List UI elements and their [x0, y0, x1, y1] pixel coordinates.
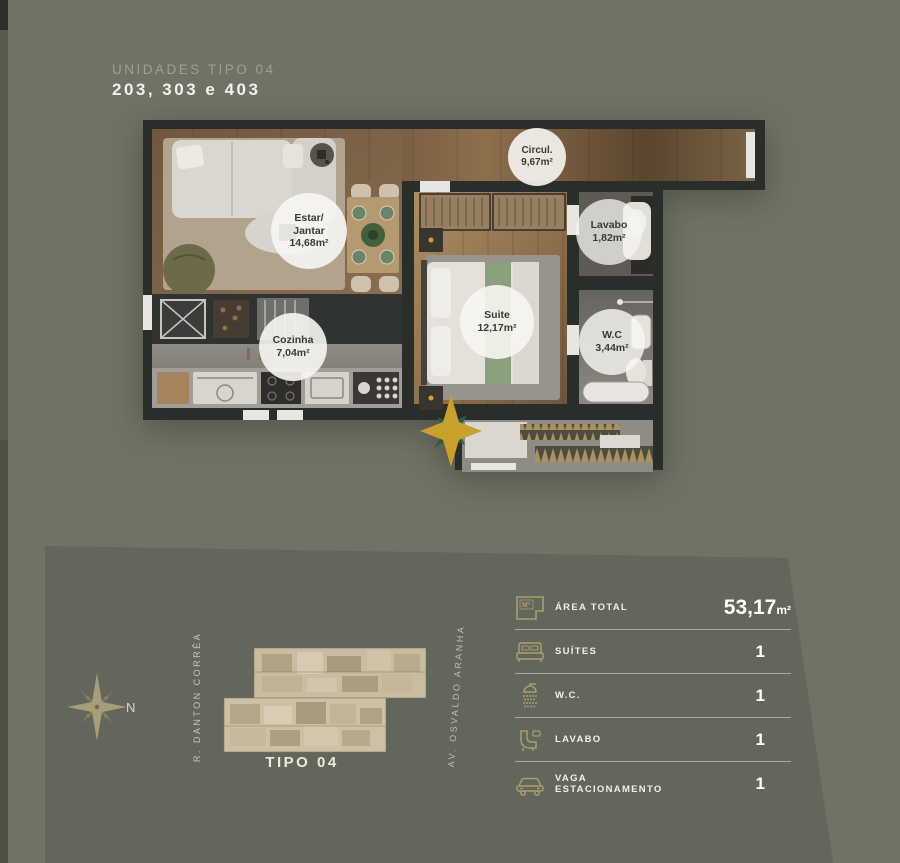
room-badge-lavabo: Lavabo 1,82m² — [576, 199, 642, 265]
car-icon — [515, 771, 555, 797]
spec-label: VAGA ESTACIONAMENTO — [555, 773, 693, 795]
svg-text:M²: M² — [522, 602, 531, 609]
street-name-left: R. DANTON CORRÊA — [192, 622, 202, 772]
compass-north-label: N — [126, 700, 136, 715]
spec-label: SUÍTES — [555, 646, 693, 657]
mini-building-plan — [222, 646, 434, 756]
spec-row-suites: SUÍTES 1 — [515, 629, 791, 673]
room-badge-estar-jantar: Estar/ Jantar 14,68m² — [271, 193, 347, 269]
spec-value: 1 — [693, 642, 791, 662]
spec-value: 1 — [693, 774, 791, 794]
shower-icon — [515, 683, 555, 709]
spec-value: 53,17m² — [719, 596, 791, 620]
room-badge-circul: Circul. 9,67m² — [508, 128, 566, 186]
spec-value: 1 — [693, 730, 791, 750]
room-badge-suite: Suite 12,17m² — [460, 285, 534, 359]
toilet-icon — [515, 727, 555, 753]
page-title: 203, 303 e 403 — [112, 80, 260, 100]
spec-row-area: M² ÁREA TOTAL 53,17m² — [515, 586, 791, 629]
spec-row-wc: W.C. 1 — [515, 673, 791, 717]
room-badge-cozinha: Cozinha 7,04m² — [259, 313, 327, 381]
room-badge-wc: W.C 3,44m² — [579, 309, 645, 375]
spec-value: 1 — [693, 686, 791, 706]
miniplan-unit-label: TIPO 04 — [222, 754, 382, 771]
specs-table: M² ÁREA TOTAL 53,17m² SUÍTES 1 — [515, 586, 791, 805]
compass-rose-icon — [58, 668, 136, 746]
area-floorplan-icon: M² — [515, 594, 555, 622]
spec-label: W.C. — [555, 690, 693, 701]
spec-row-lavabo: LAVABO 1 — [515, 717, 791, 761]
spec-row-vaga: VAGA ESTACIONAMENTO 1 — [515, 761, 791, 805]
spec-label: ÁREA TOTAL — [555, 602, 719, 613]
floorplan-drawing — [133, 110, 773, 475]
bed-icon — [515, 639, 555, 665]
left-edge-lower — [0, 440, 8, 863]
left-edge-notch — [0, 0, 8, 30]
unit-type-eyebrow: UNIDADES TIPO 04 — [112, 62, 276, 77]
spec-label: LAVABO — [555, 734, 693, 745]
